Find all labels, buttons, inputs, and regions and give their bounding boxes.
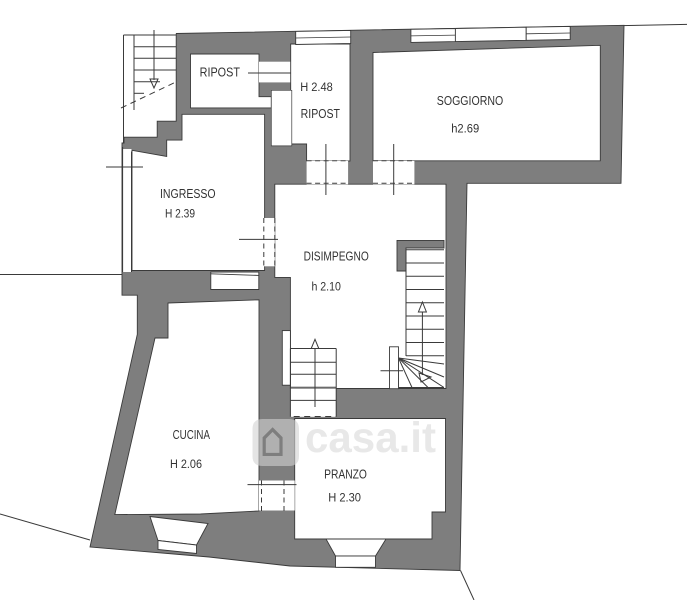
svg-text:H 2.39: H 2.39 (165, 209, 195, 221)
svg-text:h 2.10: h 2.10 (311, 282, 341, 294)
svg-text:CUCINA: CUCINA (173, 427, 211, 442)
svg-text:SOGGIORNO: SOGGIORNO (437, 93, 503, 108)
svg-text:h2.69: h2.69 (451, 123, 479, 135)
svg-text:INGRESSO: INGRESSO (160, 186, 216, 201)
svg-text:RIPOST: RIPOST (200, 65, 240, 80)
svg-text:H 2.48: H 2.48 (300, 82, 333, 94)
svg-text:PRANZO: PRANZO (324, 466, 367, 481)
svg-text:casa.it: casa.it (305, 414, 436, 462)
svg-text:DISIMPEGNO: DISIMPEGNO (304, 249, 369, 264)
svg-text:H 2.06: H 2.06 (170, 459, 202, 471)
svg-text:RIPOST: RIPOST (301, 106, 340, 121)
svg-text:H 2.30: H 2.30 (328, 493, 361, 505)
